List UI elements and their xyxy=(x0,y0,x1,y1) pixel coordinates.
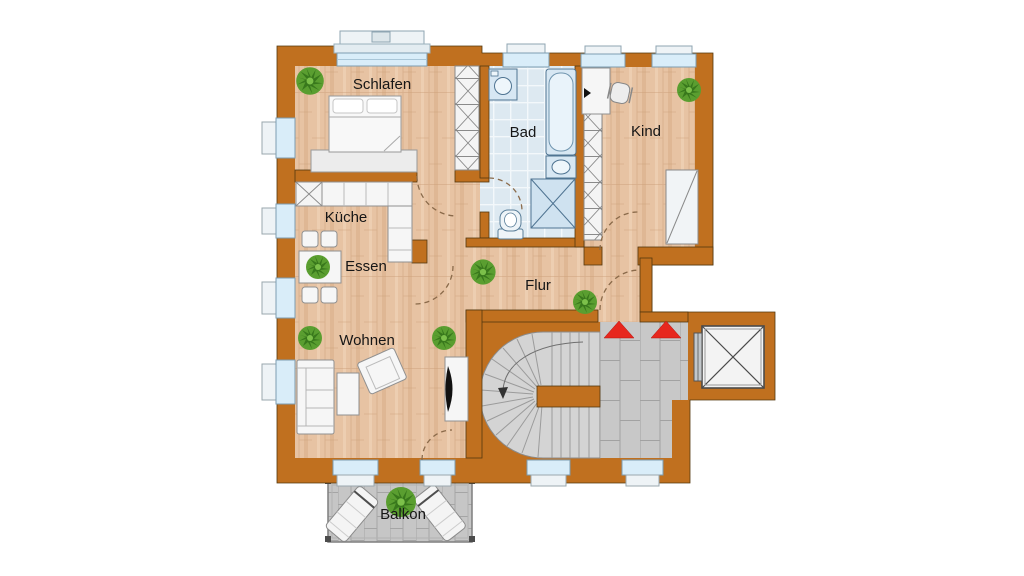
window-stairwell-2 xyxy=(622,460,663,486)
floor-plan-canvas: Schlafen Bad Kind Küche Essen Flur Wohne… xyxy=(0,0,1024,576)
room-label-schlafen: Schlafen xyxy=(353,76,411,93)
plant-icon xyxy=(296,67,324,95)
wardrobe-schlafen xyxy=(455,66,479,170)
plant-icon xyxy=(298,326,322,350)
coffee-table-icon xyxy=(337,373,359,415)
room-label-balkon: Balkon xyxy=(380,506,426,523)
window-bad xyxy=(503,44,549,67)
window-left-2 xyxy=(262,204,295,238)
toilet-icon xyxy=(498,210,523,239)
window-kind-1 xyxy=(581,46,625,67)
room-label-essen: Essen xyxy=(345,258,387,275)
plant-icon xyxy=(573,290,597,314)
tv-board-icon xyxy=(445,357,468,421)
sink-icon xyxy=(546,156,576,178)
room-label-wohnen: Wohnen xyxy=(339,332,395,349)
washing-machine-icon xyxy=(489,69,517,100)
stair-core xyxy=(537,386,600,407)
single-bed-icon xyxy=(666,170,698,244)
bathtub-icon xyxy=(546,69,576,155)
wardrobe-kind xyxy=(584,112,602,240)
room-label-kueche: Küche xyxy=(325,209,368,226)
window-stairwell-1 xyxy=(527,460,570,486)
plant-icon xyxy=(306,255,330,279)
window-left-1 xyxy=(262,118,295,158)
window-schlafen xyxy=(334,31,430,66)
balcony-door[interactable] xyxy=(420,460,455,486)
window-wohnen xyxy=(333,460,378,486)
floor-flur xyxy=(480,247,640,312)
plant-icon xyxy=(470,259,495,284)
room-label-bad: Bad xyxy=(510,124,537,141)
desk-icon xyxy=(582,68,610,114)
shower-icon xyxy=(531,179,575,228)
room-label-flur: Flur xyxy=(525,277,551,294)
elevator xyxy=(694,326,764,388)
plant-icon xyxy=(677,78,701,102)
plant-icon xyxy=(432,326,456,350)
window-kind-2 xyxy=(652,46,696,67)
window-left-3 xyxy=(262,278,295,318)
kitchen-counter xyxy=(322,182,412,206)
sofa-icon xyxy=(297,360,334,434)
floor-plan-page: Schlafen Bad Kind Küche Essen Flur Wohne… xyxy=(0,0,1024,576)
room-label-kind: Kind xyxy=(631,123,661,140)
window-left-4 xyxy=(262,360,295,404)
